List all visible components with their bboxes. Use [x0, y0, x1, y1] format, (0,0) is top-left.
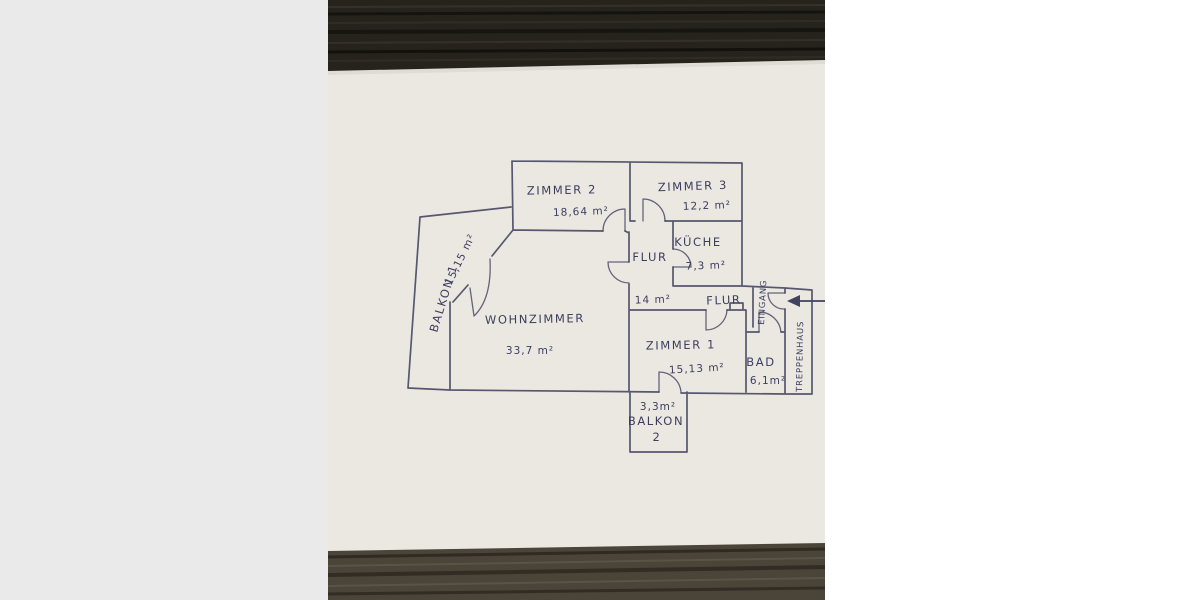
room-label-bad: BAD	[746, 355, 775, 369]
right-padding	[825, 0, 1200, 600]
wood-surface-bottom	[328, 541, 825, 600]
room-area-wohnzimmer: 33,7 m²	[506, 345, 554, 357]
room-label-balkon2: BALKON	[628, 414, 684, 428]
room-number-balkon2: 2	[653, 430, 662, 444]
floor-plan-photo: ZIMMER 2 18,64 m² ZIMMER 3 12,2 m² KÜCHE…	[0, 0, 1200, 600]
room-area-kueche: 7,3 m²	[685, 259, 726, 272]
room-area-flur-main: 14 m²	[635, 293, 672, 306]
room-label-flur-main: FLUR	[632, 250, 667, 264]
label-treppenhaus: TREPPENHAUS	[795, 321, 806, 393]
room-label-wohnzimmer: WOHNZIMMER	[485, 311, 585, 327]
room-area-zimmer3: 12,2 m²	[683, 199, 732, 213]
room-label-zimmer3: ZIMMER 3	[658, 178, 729, 194]
room-area-bad: 6,1m²	[750, 375, 786, 387]
paper-sheet	[328, 60, 825, 551]
room-label-zimmer2: ZIMMER 2	[527, 182, 597, 197]
room-label-flur-entry: FLUR	[706, 292, 742, 307]
room-area-balkon2: 3,3m²	[640, 401, 676, 413]
left-padding	[0, 0, 328, 600]
room-label-kueche: KÜCHE	[674, 233, 722, 249]
room-label-zimmer1: ZIMMER 1	[646, 337, 716, 352]
room-area-zimmer2: 18,64 m²	[553, 205, 609, 219]
